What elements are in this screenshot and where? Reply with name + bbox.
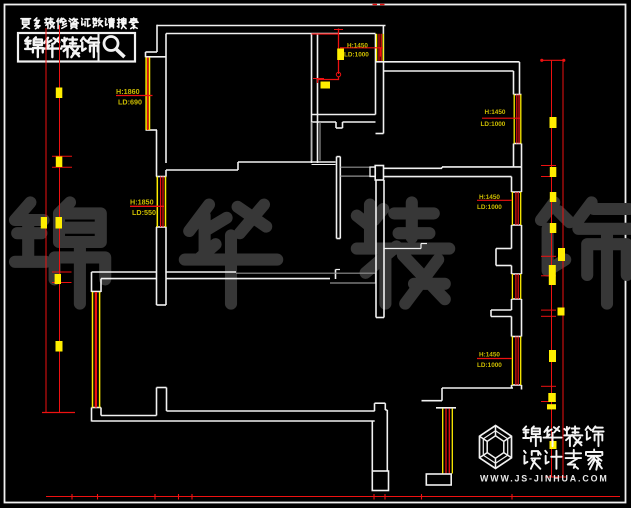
svg-text:LD:1000: LD:1000 [481,121,506,128]
svg-text:H:1450: H:1450 [479,194,500,201]
svg-text:H:1450: H:1450 [485,109,506,116]
svg-text:H:1860: H:1860 [116,87,140,96]
svg-text:LD:1000: LD:1000 [477,204,502,211]
svg-text:WWW.JS-JINHUA.COM: WWW.JS-JINHUA.COM [480,474,609,484]
svg-text:LD:690: LD:690 [118,98,142,107]
svg-text:H:1450: H:1450 [479,352,500,359]
svg-text:H:1450: H:1450 [347,42,368,49]
svg-text:LD:1000: LD:1000 [477,362,502,369]
svg-text:LD:1000: LD:1000 [344,51,369,58]
svg-text:H:1850: H:1850 [130,198,154,207]
svg-text:LD:550: LD:550 [132,208,156,217]
